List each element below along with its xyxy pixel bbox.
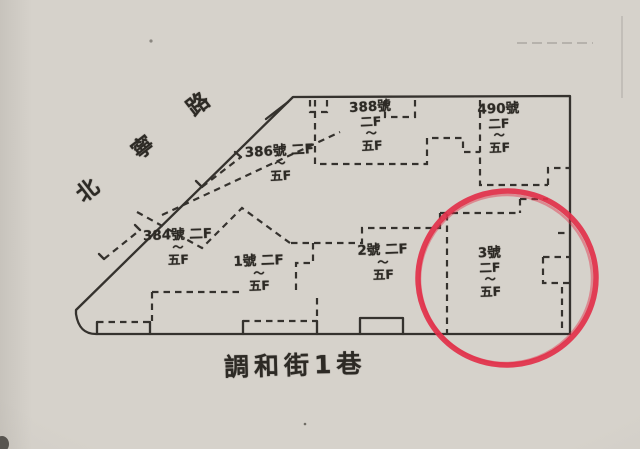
scanned-plan-page: 388號 二F ～ 五F 490號 二F ～ 五F 386號 二F ～ 五F 3… bbox=[0, 0, 640, 449]
corner-smudge bbox=[0, 436, 9, 449]
unit-label-1: 1號 二F ～ 五F bbox=[221, 253, 296, 295]
floor-bottom: 五F bbox=[458, 284, 522, 300]
unit-label-388: 388號 二F ～ 五F bbox=[331, 98, 412, 155]
floor-bottom: 五F bbox=[468, 140, 530, 156]
right-edge-indents bbox=[543, 233, 570, 331]
floor-bottom: 五F bbox=[222, 278, 296, 295]
faint-scan-artifacts bbox=[0, 16, 622, 449]
unit-label-3: 3號 二F ～ 五F bbox=[457, 245, 523, 300]
unit-label-386: 386號 二F ～ 五F bbox=[233, 142, 327, 186]
unit-label-384: 384號 二F ～ 五F bbox=[131, 226, 224, 268]
floor-bottom: 五F bbox=[346, 267, 420, 284]
street-label-bottom: 調和街1巷 bbox=[224, 344, 367, 384]
unit-label-490: 490號 二F ～ 五F bbox=[467, 101, 531, 156]
plan-drawing bbox=[0, 0, 640, 449]
unit-label-2: 2號 二F ～ 五F bbox=[345, 242, 420, 284]
